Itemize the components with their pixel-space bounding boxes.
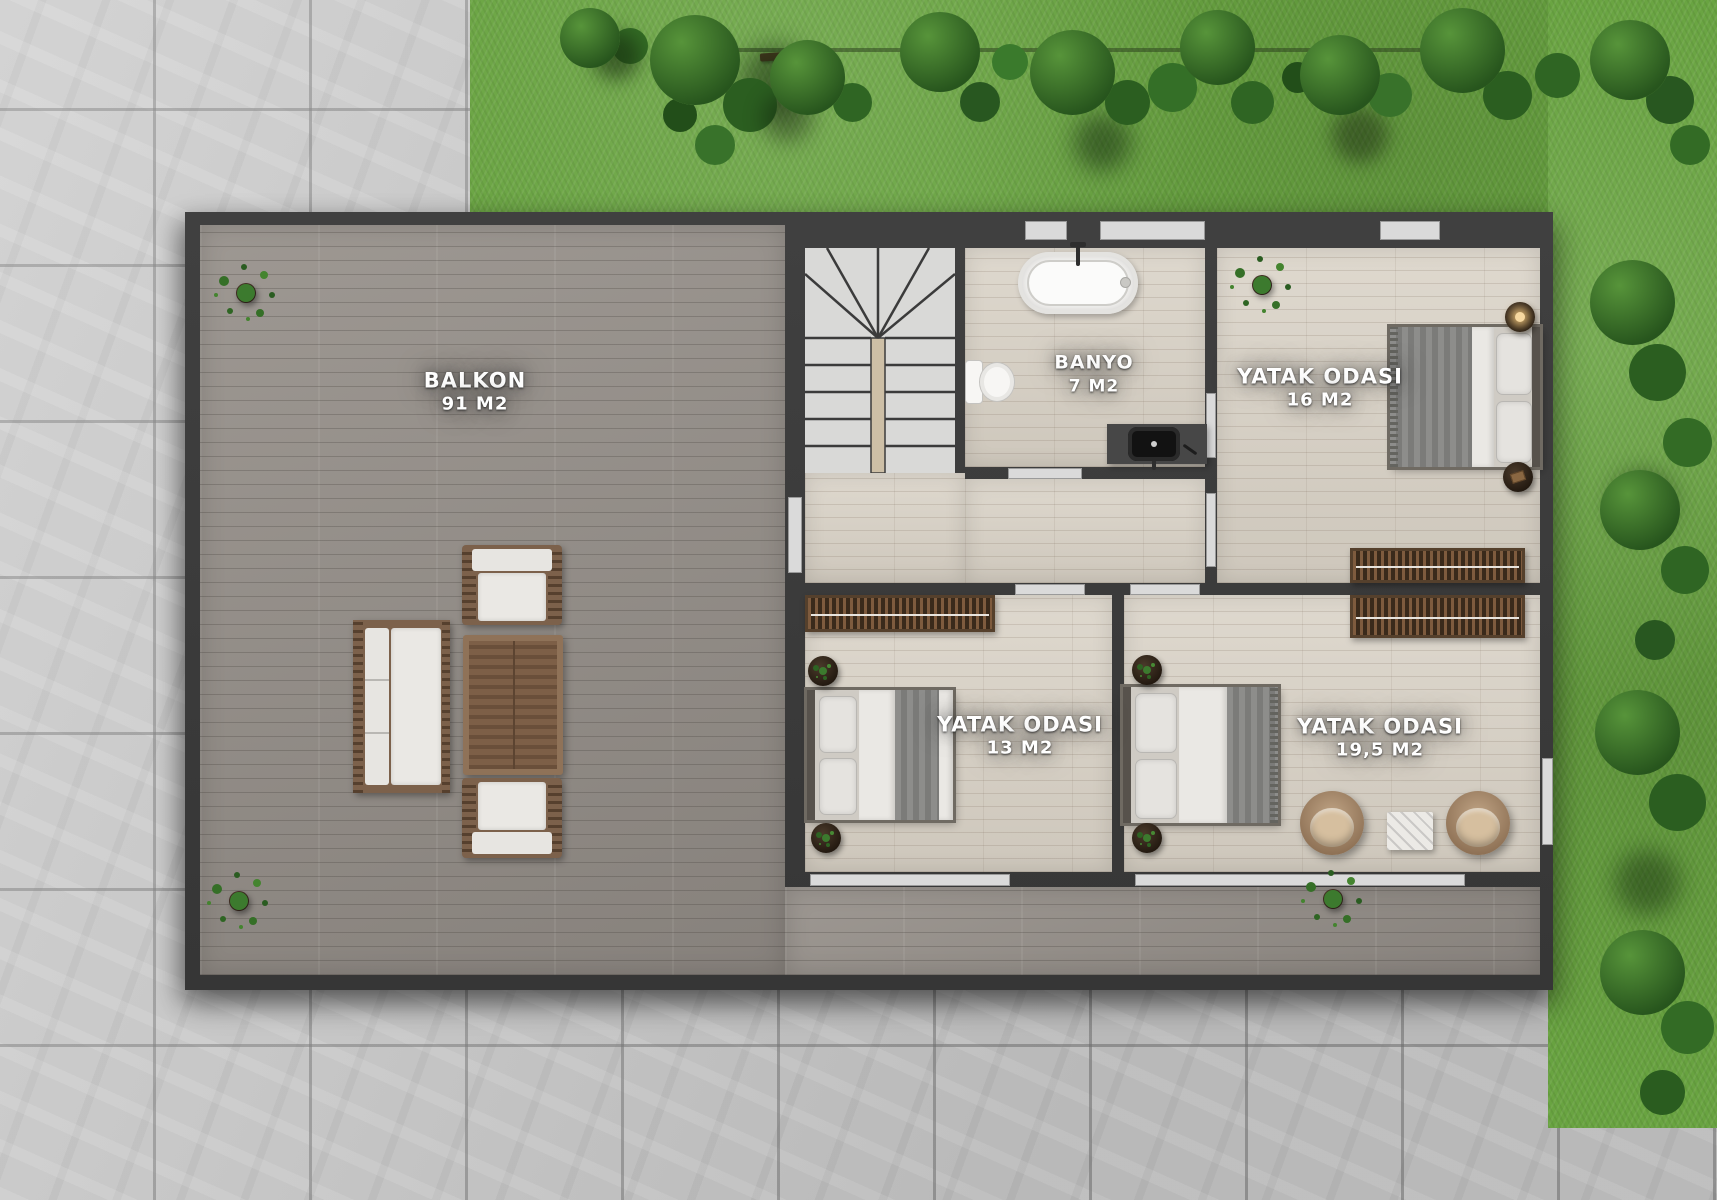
room-name: YATAK ODASI — [1237, 365, 1403, 390]
vanity-accessory — [1183, 444, 1198, 456]
tree — [1180, 10, 1255, 85]
sofa-arm-slats — [353, 620, 363, 793]
bed-sheet — [859, 690, 895, 820]
tub-armchair — [1446, 791, 1510, 855]
potted-plant-balcony-bottom — [221, 883, 257, 919]
room-name: YATAK ODASI — [937, 713, 1103, 738]
pillow — [819, 758, 857, 815]
bedroom16-wall-sill — [1206, 393, 1216, 458]
room-area: 16 M2 — [1237, 390, 1403, 412]
room-area: 13 M2 — [937, 738, 1103, 760]
tree — [1590, 20, 1670, 100]
double-bed-19 — [1123, 687, 1278, 823]
tree — [1300, 35, 1380, 115]
tree — [1420, 8, 1505, 93]
room-name: YATAK ODASI — [1297, 715, 1463, 740]
tree — [1590, 260, 1675, 345]
wardrobe-bedroom13 — [805, 595, 995, 632]
tree — [1600, 930, 1685, 1015]
plant-leaves — [237, 284, 255, 302]
room-area: 7 M2 — [1054, 376, 1133, 398]
chair-back-cushion — [472, 832, 552, 854]
book — [1510, 470, 1526, 484]
balcony-door-sill — [788, 497, 802, 573]
tree — [900, 12, 980, 92]
window-top-bedroom16 — [1380, 221, 1440, 240]
bedroom13-door-sill — [1015, 584, 1085, 595]
room-label-banyo: BANYO 7 M2 — [1054, 351, 1133, 398]
room-label-yatak13: YATAK ODASI 13 M2 — [937, 713, 1103, 760]
window-top-bathroom — [1025, 221, 1067, 240]
tree — [560, 8, 620, 68]
tree — [1595, 690, 1680, 775]
wardrobe-bedroom19 — [1350, 595, 1525, 638]
tub-faucet-stem — [1076, 245, 1080, 266]
stairwell-floor — [805, 248, 955, 473]
window-bottom-bedroom19 — [1135, 874, 1465, 886]
bed-headboard — [1123, 687, 1131, 823]
bed-sheet — [1179, 687, 1227, 823]
mini-plant — [1143, 666, 1151, 674]
pillow — [1496, 333, 1532, 395]
bathtub-inner-rim — [1027, 260, 1129, 306]
staircase — [805, 248, 955, 473]
sofa-front-rail — [442, 620, 450, 793]
side-table-book — [1503, 462, 1533, 492]
coffee-table — [1387, 812, 1433, 850]
double-bed-16 — [1390, 327, 1540, 467]
bed-blanket — [895, 690, 939, 820]
floor-plan: BALKON 91 M2 BANYO 7 M2 YATAK ODASI 16 M… — [0, 0, 1717, 1200]
plant-leaves — [1253, 276, 1271, 294]
room-name: BANYO — [1054, 351, 1133, 376]
bathtub-drain — [1120, 277, 1131, 288]
pillow — [819, 696, 857, 753]
toilet-bowl — [979, 362, 1015, 402]
side-table-plant — [808, 656, 838, 686]
candle — [1515, 312, 1525, 322]
hall-floor-left — [805, 473, 965, 583]
chair-seat-cushion — [478, 573, 546, 621]
garden-table — [463, 635, 563, 775]
side-table-plant — [1132, 823, 1162, 853]
sofa-seat-cushion — [391, 628, 441, 785]
washbasin — [1128, 427, 1180, 461]
side-table-plant — [1132, 655, 1162, 685]
tree — [1030, 30, 1115, 115]
mini-plant — [819, 667, 827, 675]
window-bottom-bedroom13 — [810, 874, 1010, 886]
garden-armchair-bottom — [462, 778, 562, 858]
pillow — [1135, 759, 1177, 819]
double-bed-13 — [807, 690, 953, 820]
potted-plant-balcony-top — [228, 275, 264, 311]
basin-faucet — [1152, 460, 1156, 470]
tree — [1600, 470, 1680, 550]
tub-armchair — [1300, 791, 1364, 855]
blanket-fringe — [1270, 687, 1278, 823]
room-label-yatak19: YATAK ODASI 19,5 M2 — [1297, 715, 1463, 762]
side-table-candle — [1505, 302, 1535, 332]
bedroom19-door-sill — [1130, 584, 1200, 595]
bed-headboard — [807, 690, 815, 820]
bathroom-door-sill — [1008, 468, 1082, 479]
plant-leaves — [230, 892, 248, 910]
window-top-bath-bed — [1100, 221, 1205, 240]
room-label-balkon: BALKON 91 M2 — [424, 369, 526, 416]
balcony-deck-lower — [785, 887, 1540, 975]
sofa-back-cushions — [365, 628, 389, 785]
chair-seat-cushion — [478, 782, 546, 830]
pillow — [1135, 693, 1177, 753]
room-name: BALKON — [424, 369, 526, 394]
window-right-bedroom19 — [1542, 758, 1553, 845]
room-label-yatak16: YATAK ODASI 16 M2 — [1237, 365, 1403, 412]
side-table-plant — [811, 823, 841, 853]
potted-plant-deck-right — [1315, 881, 1351, 917]
basin-drain — [1151, 441, 1157, 447]
potted-plant-bedroom16 — [1244, 267, 1280, 303]
garden-armchair-top — [462, 545, 562, 625]
bed-sheet — [1472, 327, 1494, 467]
wardrobe-bedroom16 — [1350, 548, 1525, 583]
garden-sofa — [353, 620, 450, 793]
tree — [770, 40, 845, 115]
hall-floor-right — [965, 479, 1205, 583]
mini-plant — [1143, 834, 1151, 842]
pillow — [1496, 401, 1532, 463]
bed-headboard — [1532, 327, 1540, 467]
room-area: 91 M2 — [424, 394, 526, 416]
plant-leaves — [1324, 890, 1342, 908]
chair-back-cushion — [472, 549, 552, 571]
vanity-counter — [1107, 424, 1207, 464]
tree — [650, 15, 740, 105]
bedroom16-door-sill — [1206, 493, 1216, 567]
mini-plant — [822, 834, 830, 842]
room-area: 19,5 M2 — [1297, 740, 1463, 762]
